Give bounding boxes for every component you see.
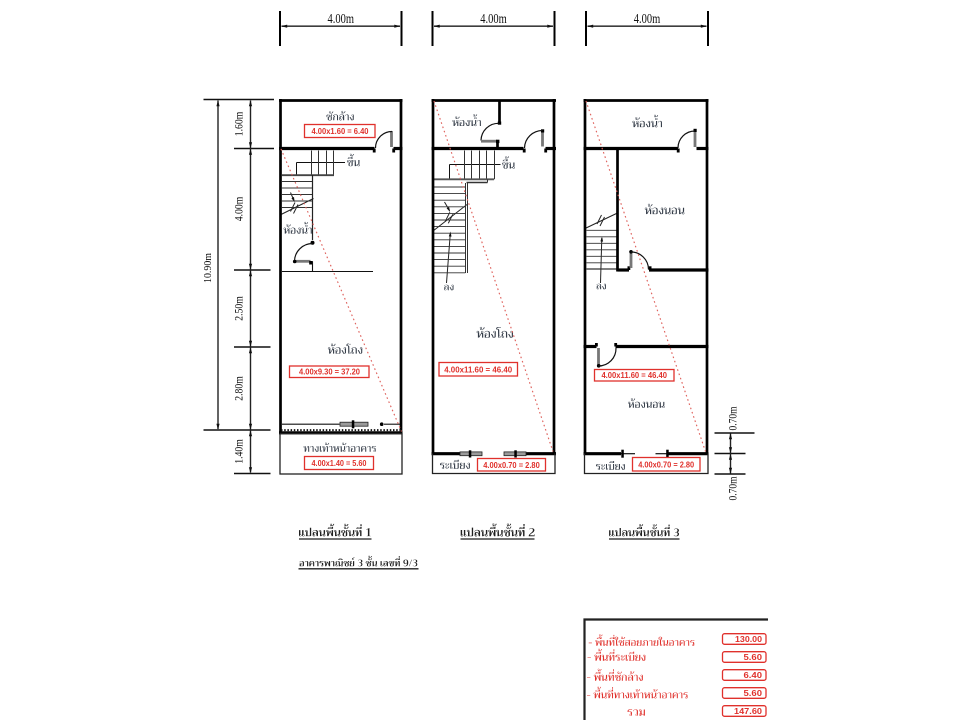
svg-text:0.70m: 0.70m bbox=[726, 406, 740, 431]
svg-text:1.60m: 1.60m bbox=[232, 111, 246, 136]
svg-text:4.00m: 4.00m bbox=[328, 11, 355, 26]
svg-text:2.50m: 2.50m bbox=[232, 296, 246, 321]
svg-text:4.00x1.40 = 5.60: 4.00x1.40 = 5.60 bbox=[312, 459, 367, 468]
svg-text:0.70m: 0.70m bbox=[726, 476, 740, 501]
svg-text:4.00x9.30 = 37.20: 4.00x9.30 = 37.20 bbox=[299, 368, 361, 377]
svg-text:4.00m: 4.00m bbox=[232, 196, 246, 221]
svg-text:4.00x11.60 = 46.40: 4.00x11.60 = 46.40 bbox=[444, 366, 513, 375]
svg-text:2.80m: 2.80m bbox=[232, 376, 246, 401]
svg-text:4.00x0.70 = 2.80: 4.00x0.70 = 2.80 bbox=[483, 461, 540, 470]
svg-text:4.00x0.70 = 2.80: 4.00x0.70 = 2.80 bbox=[638, 460, 695, 469]
svg-text:4.00m: 4.00m bbox=[634, 11, 661, 26]
svg-text:4.00m: 4.00m bbox=[480, 11, 507, 26]
svg-text:4.00x11.60 = 46.40: 4.00x11.60 = 46.40 bbox=[601, 371, 667, 380]
svg-text:1.40m: 1.40m bbox=[232, 439, 246, 464]
svg-text:130.00: 130.00 bbox=[735, 635, 763, 644]
svg-text:5.60: 5.60 bbox=[744, 653, 763, 662]
svg-text:10.90m: 10.90m bbox=[202, 253, 214, 283]
svg-text:4.00x1.60 = 6.40: 4.00x1.60 = 6.40 bbox=[312, 127, 370, 136]
svg-text:5.60: 5.60 bbox=[744, 689, 763, 698]
svg-text:147.60: 147.60 bbox=[734, 707, 763, 716]
svg-text:6.40: 6.40 bbox=[744, 671, 763, 680]
